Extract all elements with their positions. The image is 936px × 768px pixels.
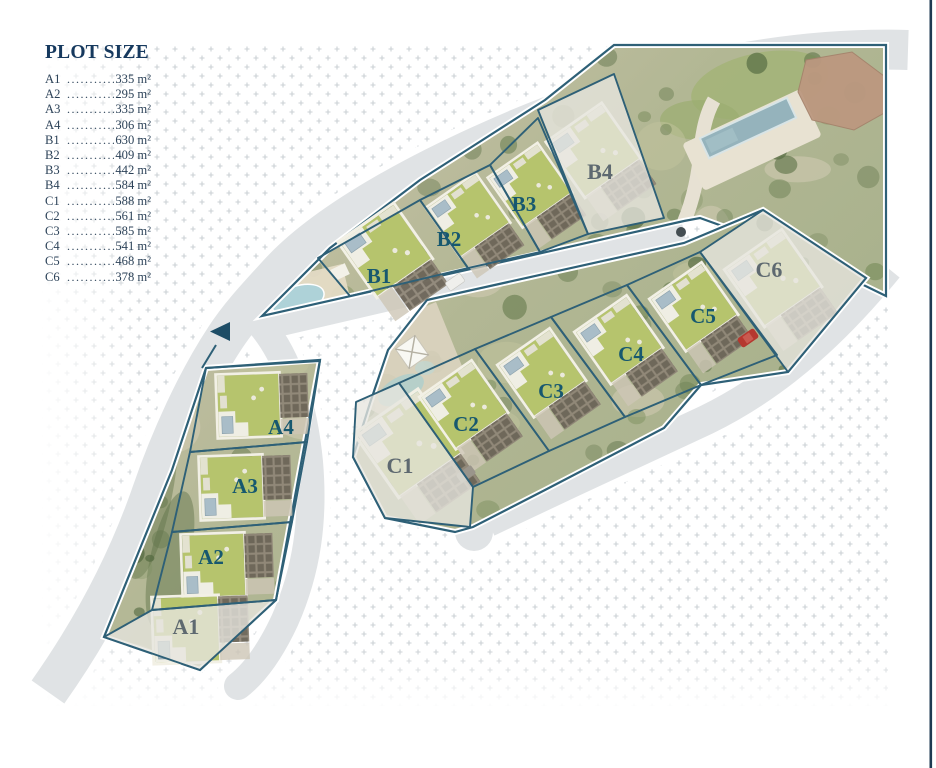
legend-item: C1588 m² bbox=[45, 194, 151, 209]
plot-label-C6: C6 bbox=[756, 257, 783, 282]
legend-item: A4306 m² bbox=[45, 118, 151, 133]
plot-area: 335 m² bbox=[115, 72, 151, 87]
plot-id: A2 bbox=[45, 87, 66, 102]
plot-id: C1 bbox=[45, 194, 66, 209]
plot-label-A2: A2 bbox=[198, 545, 224, 569]
plot-id: C6 bbox=[45, 270, 66, 285]
plot-id: A4 bbox=[45, 118, 66, 133]
plot-area: 584 m² bbox=[115, 178, 151, 193]
plot-label-B3: B3 bbox=[512, 192, 537, 216]
house-A2 bbox=[180, 531, 274, 598]
legend-item: C4541 m² bbox=[45, 239, 151, 254]
dotted-leader bbox=[67, 148, 114, 163]
house-A4 bbox=[215, 371, 309, 438]
plot-label-C2: C2 bbox=[453, 412, 479, 436]
legend-item: B3442 m² bbox=[45, 163, 151, 178]
plot-id: B2 bbox=[45, 148, 66, 163]
plot-label-B1: B1 bbox=[367, 264, 392, 288]
plot-label-C4: C4 bbox=[618, 342, 644, 366]
dotted-leader bbox=[67, 194, 114, 209]
road-junction-dot bbox=[676, 227, 686, 237]
dotted-leader bbox=[67, 270, 114, 285]
plot-area: 335 m² bbox=[115, 102, 151, 117]
plot-id: C2 bbox=[45, 209, 66, 224]
legend-item: A3335 m² bbox=[45, 102, 151, 117]
plot-label-B4: B4 bbox=[587, 159, 613, 184]
legend-items: A1335 m²A2295 m²A3335 m²A4306 m²B1630 m²… bbox=[45, 72, 151, 285]
plot-label-B2: B2 bbox=[437, 227, 462, 251]
dotted-leader bbox=[67, 133, 114, 148]
legend-item: B4584 m² bbox=[45, 178, 151, 193]
legend-item: C5468 m² bbox=[45, 254, 151, 269]
legend-item: B2409 m² bbox=[45, 148, 151, 163]
plot-label-A4: A4 bbox=[268, 415, 294, 439]
plot-label-A1: A1 bbox=[173, 614, 200, 639]
plot-area: 588 m² bbox=[115, 194, 151, 209]
legend-item: C2561 m² bbox=[45, 209, 151, 224]
plot-label-C5: C5 bbox=[690, 304, 716, 328]
dotted-leader bbox=[67, 163, 114, 178]
plot-label-C1: C1 bbox=[387, 453, 414, 478]
dotted-leader bbox=[67, 209, 114, 224]
legend-item: C6378 m² bbox=[45, 270, 151, 285]
plot-id: A3 bbox=[45, 102, 66, 117]
plot-id: C3 bbox=[45, 224, 66, 239]
dotted-leader bbox=[67, 178, 114, 193]
page-edge-line bbox=[930, 0, 933, 768]
plot-area: 585 m² bbox=[115, 224, 151, 239]
plot-area: 378 m² bbox=[115, 270, 151, 285]
legend-item: A1335 m² bbox=[45, 72, 151, 87]
plot-id: B1 bbox=[45, 133, 66, 148]
dotted-leader bbox=[67, 224, 114, 239]
plot-id: B3 bbox=[45, 163, 66, 178]
dotted-leader bbox=[67, 254, 114, 269]
plot-id: A1 bbox=[45, 72, 66, 87]
dotted-leader bbox=[67, 102, 114, 117]
plot-size-legend: PLOT SIZE A1335 m²A2295 m²A3335 m²A4306 … bbox=[45, 42, 151, 285]
legend-title: PLOT SIZE bbox=[45, 42, 151, 64]
plot-area: 442 m² bbox=[115, 163, 151, 178]
dotted-leader bbox=[67, 239, 114, 254]
plot-area: 409 m² bbox=[115, 148, 151, 163]
plot-id: B4 bbox=[45, 178, 66, 193]
plot-label-A3: A3 bbox=[232, 474, 258, 498]
legend-item: A2295 m² bbox=[45, 87, 151, 102]
plot-label-C3: C3 bbox=[538, 379, 564, 403]
plot-area: 295 m² bbox=[115, 87, 151, 102]
plot-area: 561 m² bbox=[115, 209, 151, 224]
plot-id: C5 bbox=[45, 254, 66, 269]
plot-area: 306 m² bbox=[115, 118, 151, 133]
plot-id: C4 bbox=[45, 239, 66, 254]
site-plan-page: A1A2A3A4B1B2B3B4C1C2C3C4C5C6 PLOT SIZE A… bbox=[0, 0, 936, 768]
plot-area: 630 m² bbox=[115, 133, 151, 148]
plot-area: 468 m² bbox=[115, 254, 151, 269]
dotted-leader bbox=[67, 72, 114, 87]
legend-item: B1630 m² bbox=[45, 133, 151, 148]
legend-item: C3585 m² bbox=[45, 224, 151, 239]
dotted-leader bbox=[67, 118, 114, 133]
dotted-leader bbox=[67, 87, 114, 102]
plot-area: 541 m² bbox=[115, 239, 151, 254]
